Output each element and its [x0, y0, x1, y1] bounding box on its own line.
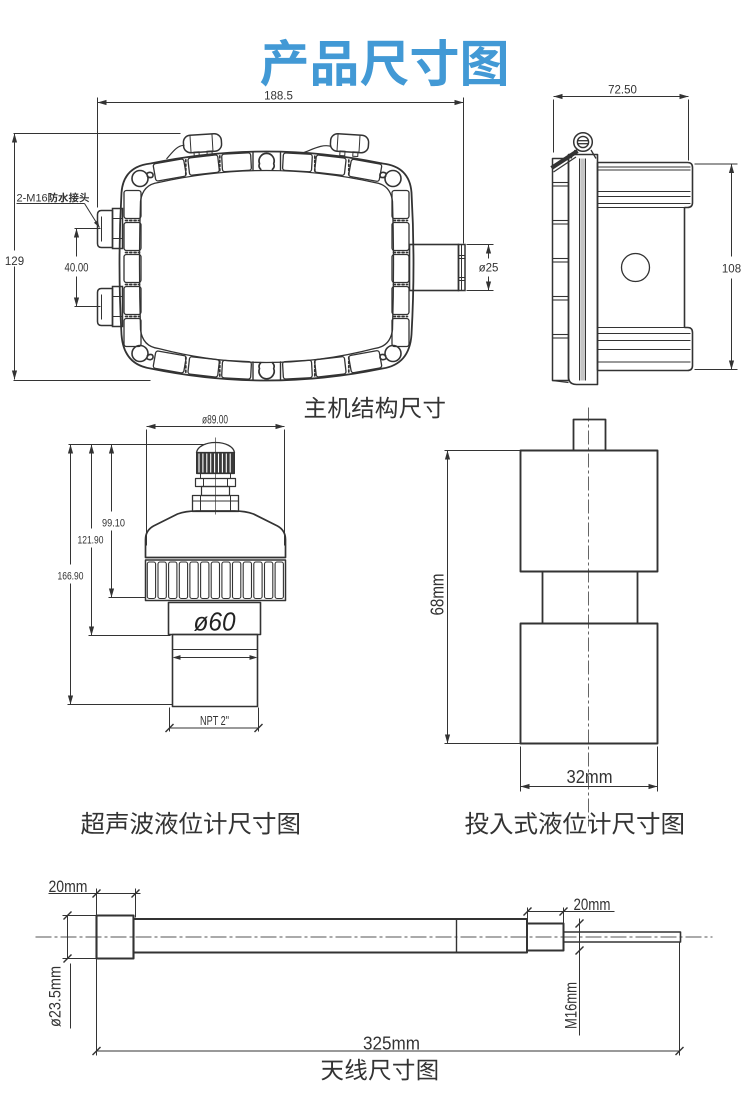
svg-text:ø25: ø25	[479, 263, 499, 275]
svg-text:72.50: 72.50	[608, 85, 637, 97]
svg-text:129: 129	[5, 256, 24, 268]
svg-text:166.90: 166.90	[58, 571, 84, 583]
svg-text:M16mm: M16mm	[562, 982, 581, 1029]
svg-text:2-M16: 2-M16	[17, 193, 48, 205]
svg-text:32mm: 32mm	[567, 767, 613, 787]
svg-text:NPT 2": NPT 2"	[200, 713, 229, 728]
svg-text:325mm: 325mm	[363, 1033, 420, 1054]
svg-text:ø89.00: ø89.00	[202, 415, 228, 427]
svg-text:68mm: 68mm	[428, 574, 448, 616]
svg-text:ø60: ø60	[194, 607, 236, 637]
svg-text:188.5: 188.5	[264, 91, 293, 103]
svg-text:ø23.5mm: ø23.5mm	[46, 966, 65, 1027]
svg-text:108: 108	[722, 264, 741, 276]
svg-text:40.00: 40.00	[65, 263, 89, 275]
svg-text:99.10: 99.10	[102, 518, 125, 530]
svg-text:121.90: 121.90	[78, 535, 104, 547]
